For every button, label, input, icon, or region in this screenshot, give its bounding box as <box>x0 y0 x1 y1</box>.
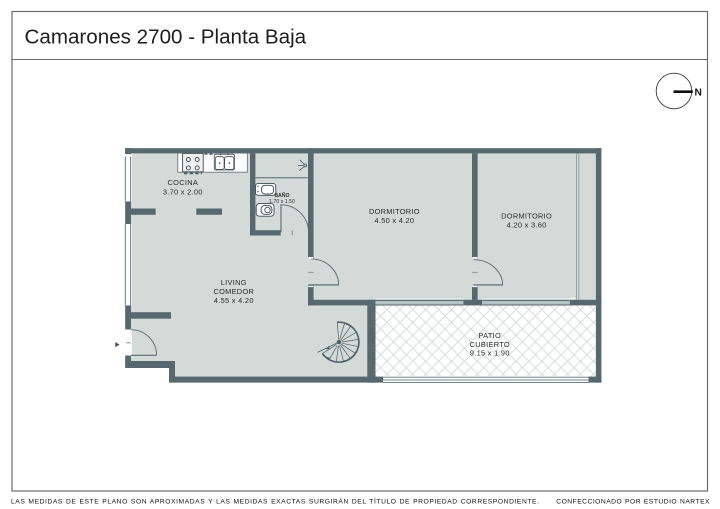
svg-text:CONFECCIONADO POR ESTUDIO NART: CONFECCIONADO POR ESTUDIO NARTEX <box>556 498 710 505</box>
svg-text:LAS MEDIDAS DE ESTE PLANO SON: LAS MEDIDAS DE ESTE PLANO SON APROXIMADA… <box>11 496 540 505</box>
svg-text:COCINA: COCINA <box>168 178 199 187</box>
svg-text:4.55 x 4.20: 4.55 x 4.20 <box>214 296 254 305</box>
svg-text:COMEDOR: COMEDOR <box>213 287 254 296</box>
svg-text:9.15 x 1.90: 9.15 x 1.90 <box>470 348 510 357</box>
svg-text:LIVING: LIVING <box>221 278 247 287</box>
svg-text:DORMITORIO: DORMITORIO <box>501 212 552 221</box>
svg-text:4.50 x 4.20: 4.50 x 4.20 <box>374 216 414 225</box>
svg-text:3.70 x 2.00: 3.70 x 2.00 <box>163 187 203 196</box>
svg-text:1.70 x 1.50: 1.70 x 1.50 <box>269 199 295 205</box>
svg-text:DORMITORIO: DORMITORIO <box>369 207 420 216</box>
svg-text:N: N <box>695 87 702 98</box>
svg-text:Camarones 2700 - Planta Baja: Camarones 2700 - Planta Baja <box>25 26 307 49</box>
svg-text:4.20 x 3.60: 4.20 x 3.60 <box>507 221 547 230</box>
svg-text:BAÑO: BAÑO <box>274 192 289 199</box>
